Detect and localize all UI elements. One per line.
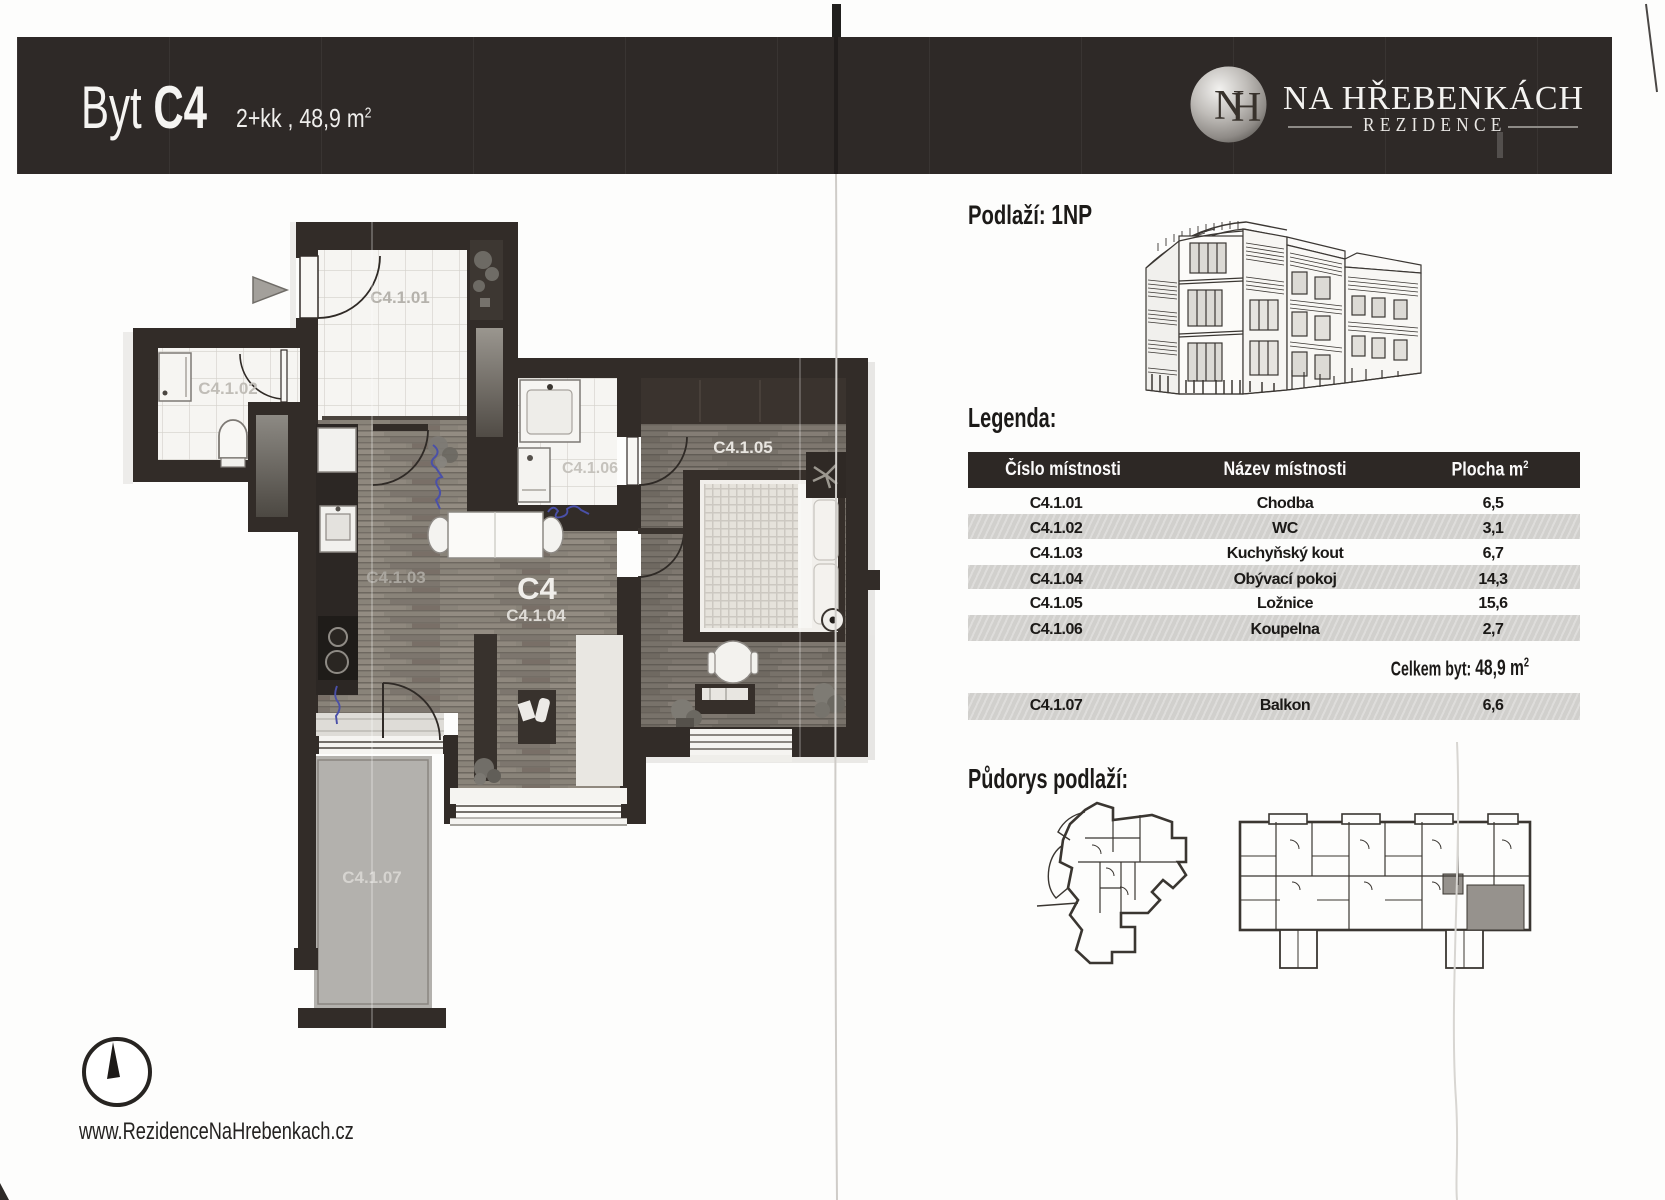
svg-text:C4.1.05: C4.1.05 — [713, 438, 773, 457]
svg-text:C4.1.03: C4.1.03 — [366, 568, 426, 587]
svg-text:C4: C4 — [517, 571, 557, 606]
svg-text:C4.1.01: C4.1.01 — [370, 288, 430, 307]
svg-text:C4.1.02: C4.1.02 — [198, 379, 258, 398]
svg-text:C4.1.04: C4.1.04 — [506, 606, 566, 625]
svg-text:C4.1.06: C4.1.06 — [562, 460, 618, 477]
